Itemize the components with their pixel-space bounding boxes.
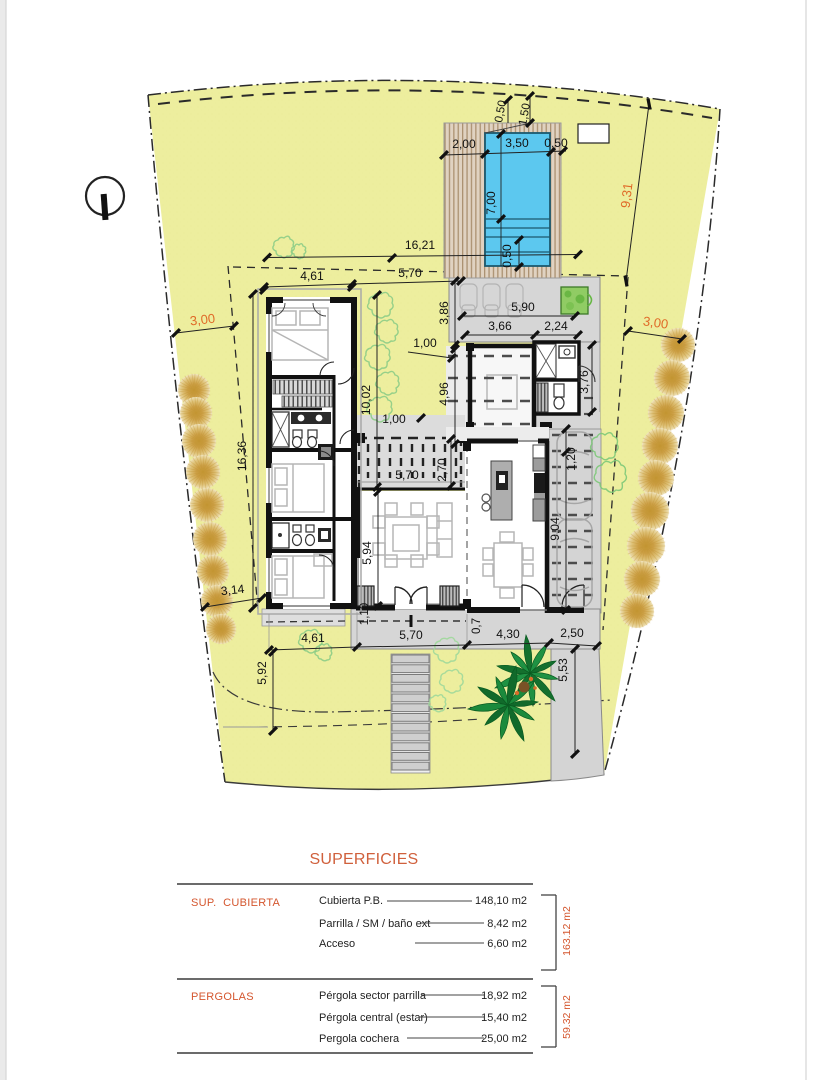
svg-text:5,90: 5,90 <box>511 300 535 314</box>
svg-text:1,00: 1,00 <box>413 336 437 350</box>
svg-text:PERGOLAS: PERGOLAS <box>191 991 254 1003</box>
svg-text:5,92: 5,92 <box>255 661 269 685</box>
svg-text:9,31: 9,31 <box>618 182 636 209</box>
svg-text:Pérgola central (estar): Pérgola central (estar) <box>319 1012 428 1024</box>
svg-text:8,42 m2: 8,42 m2 <box>487 918 527 930</box>
svg-text:4,61: 4,61 <box>300 269 324 283</box>
svg-text:Cubierta P.B.: Cubierta P.B. <box>319 895 383 907</box>
svg-text:3,00: 3,00 <box>189 311 216 329</box>
svg-text:Pergola cochera: Pergola cochera <box>319 1033 400 1045</box>
svg-text:3,66: 3,66 <box>488 319 512 333</box>
svg-text:3,50: 3,50 <box>505 136 529 150</box>
svg-text:7,00: 7,00 <box>484 191 498 215</box>
svg-text:59.32 m2: 59.32 m2 <box>561 995 573 1039</box>
svg-text:2,00: 2,00 <box>452 137 476 151</box>
svg-text:3,76: 3,76 <box>577 370 591 394</box>
svg-text:0,7: 0,7 <box>471 618 483 634</box>
svg-text:5,53: 5,53 <box>556 658 570 682</box>
svg-text:2,70: 2,70 <box>435 458 449 482</box>
svg-text:Parrilla / SM / baño ext: Parrilla / SM / baño ext <box>319 918 430 930</box>
svg-text:16,21: 16,21 <box>405 238 436 252</box>
svg-text:25,00 m2: 25,00 m2 <box>481 1033 527 1045</box>
svg-text:3,86: 3,86 <box>437 301 451 325</box>
svg-text:0,50: 0,50 <box>544 136 568 150</box>
svg-text:5,70: 5,70 <box>399 628 423 642</box>
svg-text:1,10: 1,10 <box>359 603 371 625</box>
svg-text:1,00: 1,00 <box>382 412 406 426</box>
svg-text:4,30: 4,30 <box>496 627 520 641</box>
svg-text:148,10 m2: 148,10 m2 <box>475 895 527 907</box>
svg-text:4,61: 4,61 <box>301 631 325 645</box>
svg-text:18,92 m2: 18,92 m2 <box>481 990 527 1002</box>
svg-text:9,04: 9,04 <box>548 517 562 541</box>
svg-text:5,70: 5,70 <box>395 468 419 482</box>
svg-text:SUPERFICIES: SUPERFICIES <box>310 851 419 868</box>
svg-text:Acceso: Acceso <box>319 938 355 950</box>
svg-text:15,40 m2: 15,40 m2 <box>481 1012 527 1024</box>
svg-text:6,60 m2: 6,60 m2 <box>487 938 527 950</box>
svg-text:4,96: 4,96 <box>437 382 451 406</box>
svg-text:2,24: 2,24 <box>544 319 568 333</box>
svg-text:5,94: 5,94 <box>360 541 374 565</box>
svg-text:3,14: 3,14 <box>220 582 245 598</box>
svg-text:5,70: 5,70 <box>398 266 422 280</box>
svg-text:163.12 m2: 163.12 m2 <box>561 906 573 956</box>
svg-text:2,50: 2,50 <box>560 626 584 640</box>
svg-text:0,50: 0,50 <box>500 244 514 268</box>
svg-text:16,36: 16,36 <box>235 441 249 472</box>
svg-text:Pérgola sector parrilla: Pérgola sector parrilla <box>319 990 427 1002</box>
svg-text:10,02: 10,02 <box>359 385 373 416</box>
svg-text:SUP. CUBIERTA: SUP. CUBIERTA <box>191 897 281 909</box>
